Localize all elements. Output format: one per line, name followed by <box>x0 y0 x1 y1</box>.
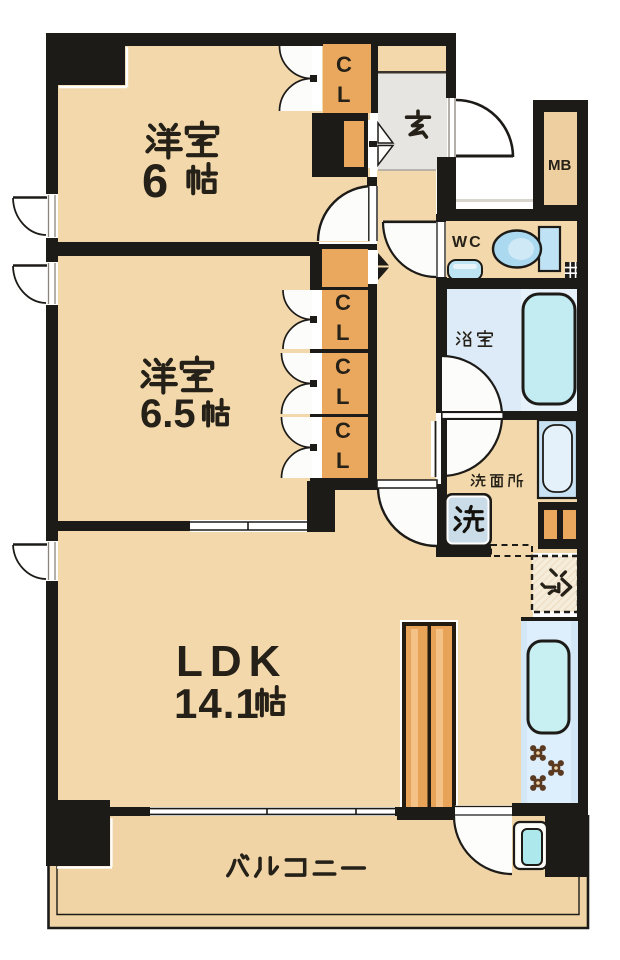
svg-text:L: L <box>336 448 349 473</box>
svg-text:L: L <box>337 82 350 107</box>
svg-text:6.5: 6.5 <box>140 392 196 436</box>
svg-text:C: C <box>335 290 351 315</box>
svg-text:C: C <box>335 354 351 379</box>
svg-text:L: L <box>336 320 349 345</box>
svg-text:C: C <box>335 418 351 443</box>
svg-text:WC: WC <box>452 234 483 251</box>
svg-text:MB: MB <box>548 157 571 174</box>
svg-text:L: L <box>336 384 349 409</box>
svg-text:14.1: 14.1 <box>174 680 260 727</box>
svg-text:C: C <box>336 52 352 77</box>
svg-text:LDK: LDK <box>176 637 287 686</box>
svg-text:6: 6 <box>142 154 168 207</box>
